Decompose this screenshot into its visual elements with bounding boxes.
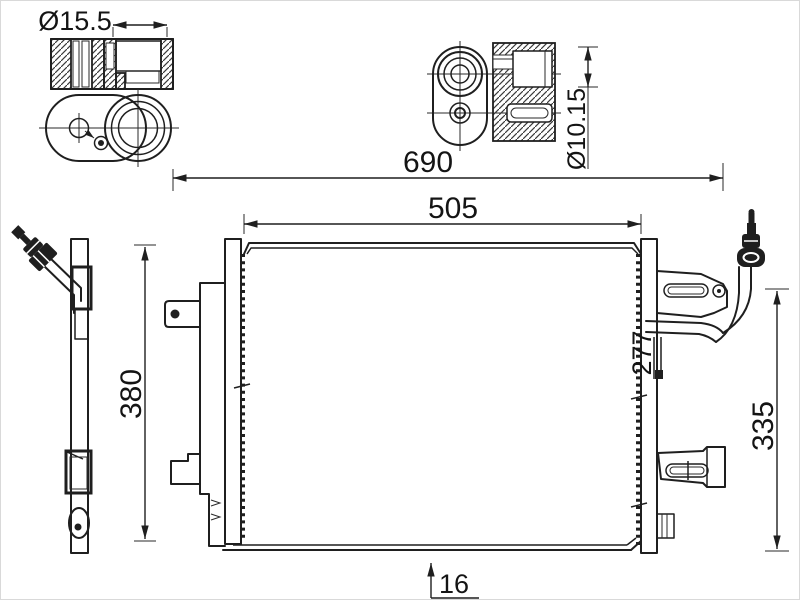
drier-bracket-box: [66, 451, 91, 493]
drawing-canvas: Ø15.5 Ø10.15 690 5: [0, 0, 800, 600]
condenser-assembly: [165, 209, 765, 553]
dimension-label-277: 277: [627, 330, 657, 375]
dim-dia-15-5: Ø15.5: [38, 6, 167, 37]
dim-overall-width-690: 690: [173, 146, 723, 191]
drier-valve-fitting: [6, 220, 58, 272]
upper-left-bracket: [165, 301, 200, 327]
dimension-label-dia-15-5: Ø15.5: [38, 6, 112, 36]
drier-inlet-pipe: [41, 256, 81, 313]
left-tank: [225, 239, 241, 544]
outlet-port: [657, 514, 674, 538]
lower-right-bracket: [658, 447, 725, 487]
upper-right-bracket: [646, 271, 727, 379]
bottom-header: [223, 538, 641, 550]
service-valve-fitting: [737, 209, 765, 267]
dimension-label-16: 16: [439, 569, 469, 599]
bracket-hole: [171, 310, 180, 319]
condenser-technical-drawing: Ø15.5 Ø10.15 690 5: [1, 1, 800, 600]
dimension-label-505: 505: [428, 192, 478, 225]
dim-left-height-380: 380: [115, 245, 156, 541]
dimension-label-335: 335: [747, 401, 780, 451]
dimension-label-dia-10-15: Ø10.15: [563, 88, 591, 170]
dimension-label-690: 690: [403, 146, 453, 179]
receiver-drier: [6, 220, 91, 553]
dim-core-width-505: 505: [244, 192, 641, 234]
dim-dia-10-15: Ø10.15: [563, 47, 598, 170]
fitting-detail-top-right: [427, 41, 561, 151]
fitting-flange-view: [39, 89, 179, 167]
bracket-slot: [664, 284, 708, 297]
top-header: [244, 243, 641, 254]
dim-right-height-335: 335: [747, 289, 789, 551]
bracket-slot-lower: [666, 464, 708, 477]
dimension-label-380: 380: [115, 369, 148, 419]
lower-left-bracket: [171, 454, 200, 484]
dim-bracket-span-277: 277: [627, 330, 657, 375]
left-side-plate: [200, 283, 225, 546]
fitting-section-view: [51, 39, 173, 89]
dim-core-depth-16: 16: [431, 563, 479, 599]
